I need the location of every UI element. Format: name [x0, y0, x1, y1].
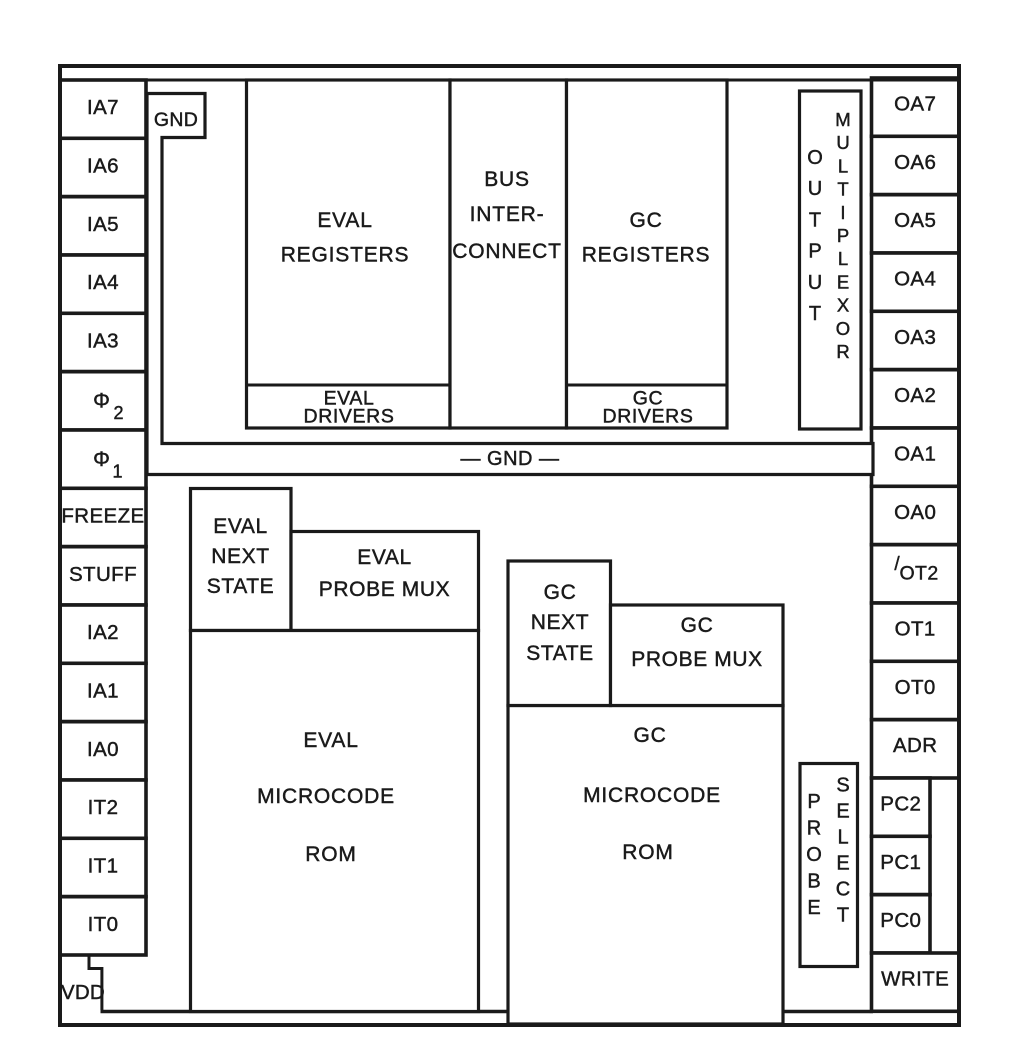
svg-text:Φ: Φ	[93, 448, 110, 471]
svg-text:GC: GC	[633, 724, 666, 747]
svg-text:STATE: STATE	[526, 642, 594, 665]
svg-text:MULTIPLEXOR: MULTIPLEXOR	[835, 109, 850, 362]
svg-text:IA6: IA6	[87, 155, 119, 178]
svg-text:MICROCODE: MICROCODE	[257, 785, 395, 808]
svg-text:IT1: IT1	[88, 855, 119, 878]
svg-text:OA6: OA6	[894, 151, 936, 174]
svg-text:PROBE MUX: PROBE MUX	[631, 648, 762, 671]
svg-text:— GND —: — GND —	[460, 448, 559, 470]
svg-text:ROM: ROM	[622, 841, 673, 864]
svg-text:IA7: IA7	[87, 96, 119, 119]
svg-text:GC: GC	[681, 614, 714, 637]
svg-text:GND: GND	[154, 109, 198, 131]
svg-text:PC0: PC0	[880, 909, 921, 932]
svg-text:DRIVERS: DRIVERS	[603, 406, 694, 428]
svg-text:EVAL: EVAL	[213, 515, 268, 538]
svg-text:1: 1	[112, 461, 122, 481]
svg-text:PROBE: PROBE	[806, 791, 822, 919]
svg-text:STUFF: STUFF	[69, 563, 137, 586]
svg-text:2: 2	[113, 403, 123, 423]
svg-text:EVAL: EVAL	[317, 209, 372, 232]
svg-text:FREEZE: FREEZE	[61, 505, 144, 528]
svg-text:PROBE MUX: PROBE MUX	[319, 578, 450, 601]
svg-text:WRITE: WRITE	[881, 968, 949, 991]
svg-text:OA2: OA2	[894, 384, 936, 407]
svg-text:MICROCODE: MICROCODE	[583, 784, 721, 807]
svg-text:NEXT: NEXT	[531, 611, 589, 634]
svg-text:INTER-: INTER-	[470, 203, 545, 226]
svg-text:Φ: Φ	[93, 390, 110, 413]
svg-text:NEXT: NEXT	[211, 545, 269, 568]
svg-text:GC: GC	[544, 581, 577, 604]
svg-text:PC1: PC1	[880, 851, 921, 874]
svg-text:OA3: OA3	[894, 326, 936, 349]
svg-text:ADR: ADR	[893, 734, 937, 757]
svg-text:IA3: IA3	[87, 330, 119, 353]
svg-text:REGISTERS: REGISTERS	[582, 244, 711, 267]
svg-text:PC2: PC2	[880, 793, 921, 816]
svg-text:OA0: OA0	[894, 501, 936, 524]
svg-text:BUS: BUS	[484, 168, 530, 191]
svg-text:CONNECT: CONNECT	[452, 240, 561, 263]
svg-text:OA7: OA7	[894, 93, 936, 116]
svg-text:IA4: IA4	[87, 271, 119, 294]
svg-text:OT0: OT0	[895, 676, 936, 699]
svg-text:OA5: OA5	[894, 209, 936, 232]
svg-text:GC: GC	[629, 209, 662, 232]
svg-text:IT0: IT0	[88, 913, 119, 936]
svg-text:VDD: VDD	[61, 981, 105, 1004]
svg-text:REGISTERS: REGISTERS	[281, 244, 410, 267]
svg-text:STATE: STATE	[207, 575, 275, 598]
svg-text:OT1: OT1	[895, 618, 936, 641]
svg-text:IT2: IT2	[88, 796, 119, 819]
svg-text:OA4: OA4	[894, 268, 936, 291]
svg-text:IA2: IA2	[87, 621, 119, 644]
svg-text:ROM: ROM	[305, 843, 356, 866]
svg-text:EVAL: EVAL	[303, 729, 358, 752]
svg-text:IA1: IA1	[87, 680, 119, 703]
svg-text:DRIVERS: DRIVERS	[304, 406, 395, 428]
svg-text:IA5: IA5	[87, 213, 119, 236]
svg-text:IA0: IA0	[87, 738, 119, 761]
svg-text:OA1: OA1	[894, 443, 936, 466]
svg-text:EVAL: EVAL	[357, 546, 412, 569]
svg-text:OT2: OT2	[899, 562, 938, 584]
